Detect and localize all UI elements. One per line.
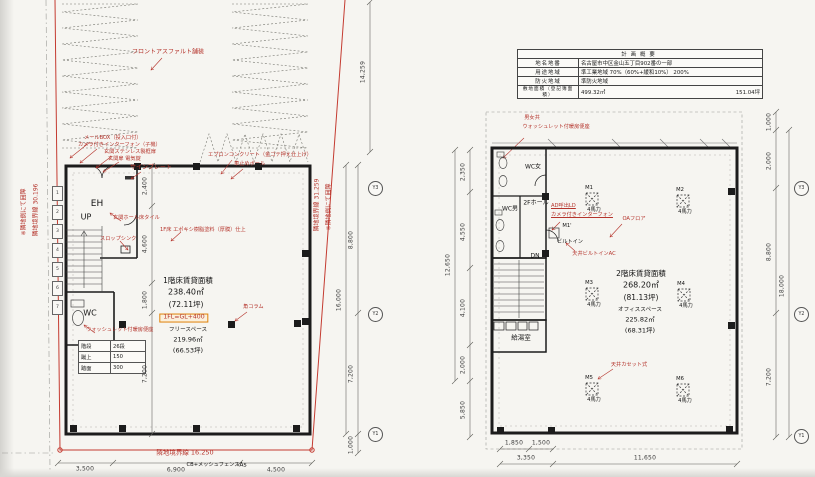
area-m2-2f: 268.20㎡ bbox=[623, 282, 659, 291]
car-stop-pole-label: 車止めポール bbox=[234, 162, 265, 168]
office-space-tsubo: (68.31坪) bbox=[625, 327, 655, 334]
ac-unit-id: M2 bbox=[676, 188, 684, 194]
dim-5850: 5,850 bbox=[461, 401, 468, 419]
ac-unit-id: M5 bbox=[585, 376, 593, 382]
floor-level-box: 1FL=GL+400 bbox=[159, 314, 208, 323]
area-tsubo-2f: (81.13坪) bbox=[624, 294, 659, 302]
dim-7200-f2: 7,200 bbox=[767, 368, 774, 386]
office-space-m2: 225.82㎡ bbox=[625, 316, 654, 323]
dim-2400: 2,400 bbox=[143, 177, 150, 195]
dim-8800-f2: 8,800 bbox=[767, 243, 774, 261]
grid-bubble-y1: Y1 bbox=[794, 429, 809, 444]
boundary-left-label: 隣地境界線 30.196 bbox=[34, 184, 41, 237]
grid-bubble-y3: Y3 bbox=[794, 181, 809, 196]
entrance-door-label: 玄関ステンレス製框扉 bbox=[104, 150, 156, 156]
builtin-text: ビルトイン bbox=[557, 240, 583, 246]
cassette-ac-label: 天井カセット式 bbox=[611, 363, 647, 369]
sign-plate-label: サインプレート bbox=[130, 165, 172, 172]
dim-1800: 1,800 bbox=[143, 291, 150, 309]
dim-4500: 4,500 bbox=[267, 468, 285, 475]
boundary-bottom-label: 隣地境界線 16.250 bbox=[156, 449, 213, 456]
overview-row-value: 準工業地域 70%（60%+緩和10%） 200% bbox=[579, 68, 763, 77]
room-kitchen: 給湯室 bbox=[511, 334, 531, 341]
builtin-ac-label: 天井ビルトインAC bbox=[572, 252, 615, 258]
dim-4550: 4,550 bbox=[461, 223, 468, 241]
stall-number: 7 bbox=[52, 300, 63, 315]
floor-finish-label: 1F床 エポキシ樹脂塗料（厚膜）仕上 bbox=[160, 228, 246, 234]
dim-6900: 6,900 bbox=[167, 468, 185, 475]
grid-bubble-y1: Y1 bbox=[368, 427, 383, 442]
paving-code: As bbox=[239, 463, 246, 470]
room-hall-2f: 2Fホール bbox=[523, 201, 548, 208]
ac-unit-id: M1 bbox=[585, 186, 593, 192]
interphone-label: カメラ付きインターフォン（子機） bbox=[78, 143, 161, 149]
dim-1500: 1,500 bbox=[532, 441, 550, 448]
grid-bubble-y3: Y3 bbox=[368, 181, 383, 196]
ac-unit-power: 4馬力 bbox=[679, 304, 693, 310]
mail-label: メールBOX（投入口付） bbox=[84, 136, 141, 142]
room-wc-m: WC男 bbox=[502, 207, 518, 214]
dim-3350: 3,350 bbox=[517, 456, 535, 463]
columns-2f bbox=[497, 188, 735, 434]
stall-number: 5 bbox=[52, 262, 63, 277]
stall-number: 4 bbox=[52, 243, 63, 258]
stall-number: 1 bbox=[52, 186, 63, 201]
boundary-left-note: ※隣地側にて囲障 bbox=[22, 188, 29, 235]
columns-1f bbox=[70, 163, 309, 432]
ac-unit-power: 4馬力 bbox=[587, 398, 601, 404]
area-tsubo-1f: (72.11坪) bbox=[169, 301, 204, 309]
dim-16000: 16,000 bbox=[337, 289, 344, 311]
fence-note: CB+メッシュフェンス bbox=[187, 463, 240, 469]
call-button-label: AD呼出LD bbox=[551, 204, 576, 210]
room-up: UP bbox=[81, 214, 92, 223]
grid-bubble-y2: Y2 bbox=[794, 307, 809, 322]
washlet-label-1f: ウォッシュレット付暖房便座 bbox=[86, 328, 153, 334]
dim-18000: 18,000 bbox=[780, 275, 787, 297]
overview-row-label: 用途地域 bbox=[518, 68, 579, 77]
dim-1850: 1,850 bbox=[505, 441, 523, 448]
room-dn: DN bbox=[530, 254, 539, 261]
dim-12650: 12,650 bbox=[446, 254, 453, 276]
paving-label: フロントアスファルト舗装 bbox=[132, 50, 204, 57]
interphone-label-2f: カメラ付きインターフォン bbox=[551, 213, 613, 219]
overview-title: 計画概要 bbox=[518, 50, 763, 59]
free-space-tsubo: (66.53坪) bbox=[173, 347, 203, 354]
door-lock-label: 玄関扉 電気錠 bbox=[108, 157, 141, 163]
office-space-label: オフィススペース bbox=[618, 307, 662, 313]
ac-unit-id: M3 bbox=[585, 281, 593, 287]
ac-unit-power: 4馬力 bbox=[678, 399, 692, 405]
stairs-2f bbox=[494, 260, 544, 318]
stair-spec-table: 階段26段 蹴上150 踏面300 bbox=[78, 340, 146, 374]
column-label: 角コラム bbox=[243, 305, 264, 311]
area-title-2f: 2階床賃貸面積 bbox=[616, 270, 666, 278]
dim-14259: 14,259 bbox=[361, 61, 368, 83]
wc-fixture-1f bbox=[71, 300, 84, 326]
stall-number: 2 bbox=[52, 205, 63, 220]
dim-7200-int: 7,200 bbox=[143, 365, 150, 383]
building-2f bbox=[486, 112, 742, 449]
room-wc-w: WC女 bbox=[525, 165, 541, 172]
slop-sink-label: スロップシンク bbox=[100, 237, 136, 243]
dim-1000-f1: 1,000 bbox=[349, 436, 356, 454]
oa-floor-label: OAフロア bbox=[622, 217, 645, 223]
washlet-label-2f: ウォッシュレット付暖房便座 bbox=[522, 125, 589, 131]
boundary-right-label: 隣地境界線 31.259 bbox=[315, 179, 322, 232]
overview-row-value: 名古屋市中区金山五丁目902番の一部 bbox=[579, 59, 763, 68]
ac-unit-id: M4 bbox=[677, 282, 685, 288]
ac-unit-power: 4馬力 bbox=[587, 303, 601, 309]
apron-concrete-label: エプロンコンクリート（金ゴテ押え仕上げ） bbox=[208, 153, 312, 159]
dim-3500: 3,500 bbox=[76, 467, 94, 474]
dim-7200-f1: 7,200 bbox=[349, 365, 356, 383]
dim-4100: 4,100 bbox=[461, 299, 468, 317]
grid-bubble-y2: Y2 bbox=[368, 307, 383, 322]
dim-2000-f2l: 2,000 bbox=[461, 356, 468, 374]
area-m2-1f: 238.40㎡ bbox=[168, 289, 204, 298]
room-eh: EH bbox=[91, 199, 103, 209]
overview-row-label: 敷地面積（登記簿面積） bbox=[518, 86, 579, 99]
overview-row-label: 防火地域 bbox=[518, 77, 579, 86]
overview-row-value: 準防火地域 bbox=[579, 77, 763, 86]
area-title-1f: 1階床賃貸面積 bbox=[163, 277, 213, 285]
offset-lines bbox=[2, 0, 56, 470]
wc-shared-label: 男女共 bbox=[524, 116, 540, 122]
free-space-m2: 219.96㎡ bbox=[173, 336, 202, 343]
floorplan-canvas: 計画概要 地名地番 名古屋市中区金山五丁目902番の一部 用途地域 準工業地域 … bbox=[0, 0, 815, 477]
stall-number: 6 bbox=[52, 281, 63, 296]
dim-2000-f2r: 2,000 bbox=[767, 152, 774, 170]
ac-unit-power: 4馬力 bbox=[678, 210, 692, 216]
overview-row-value: 499.32㎡ 151.04坪 bbox=[579, 86, 763, 99]
hall-tile-label: 玄関ホール床タイル bbox=[113, 216, 160, 222]
dim-8800-f1: 8,800 bbox=[349, 231, 356, 249]
overview-row-label: 地名地番 bbox=[518, 59, 579, 68]
ac-m1-dash-label: M1' bbox=[562, 224, 571, 230]
dim-4600: 4,600 bbox=[143, 235, 150, 253]
dim-1000-f2r: 1,000 bbox=[767, 113, 774, 131]
dim-2350: 2,350 bbox=[461, 163, 468, 181]
free-space-label: フリースペース bbox=[169, 327, 207, 333]
boundary-right-note: ※隣地側にて囲障 bbox=[327, 183, 334, 230]
project-overview-table: 計画概要 地名地番 名古屋市中区金山五丁目902番の一部 用途地域 準工業地域 … bbox=[517, 49, 763, 99]
wc-fixtures-2f bbox=[495, 152, 507, 252]
ac-unit-id: M6 bbox=[676, 377, 684, 383]
dim-11650: 11,650 bbox=[634, 456, 656, 463]
ac-unit-power: 4馬力 bbox=[587, 208, 601, 214]
stairs-1f bbox=[66, 226, 102, 292]
stall-number: 3 bbox=[52, 224, 63, 239]
room-wc-1f: WC bbox=[83, 310, 97, 319]
